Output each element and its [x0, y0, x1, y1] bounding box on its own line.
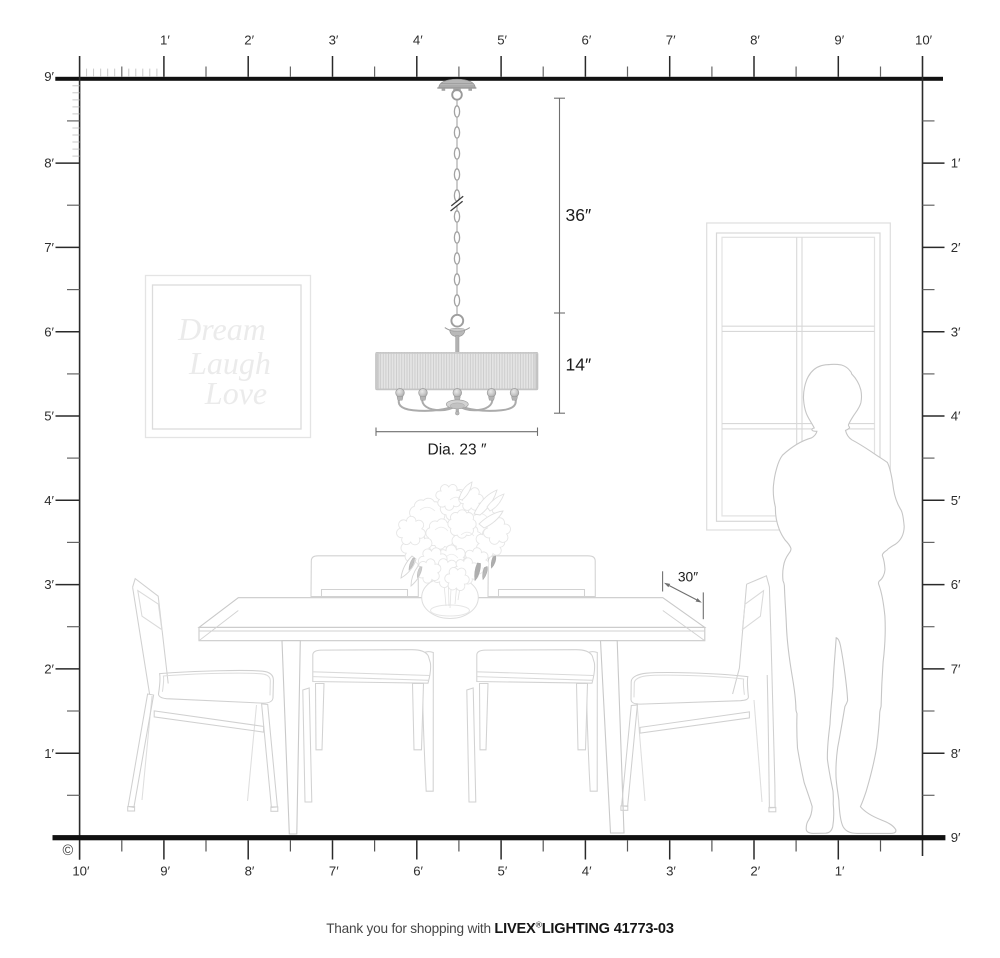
svg-text:8′: 8′	[750, 32, 760, 47]
svg-text:1′: 1′	[951, 156, 961, 171]
svg-text:6′: 6′	[951, 577, 961, 592]
svg-text:9′: 9′	[44, 69, 54, 84]
svg-text:©: ©	[63, 843, 74, 859]
svg-text:Dia. 23 ″: Dia. 23 ″	[428, 442, 487, 459]
svg-text:9′: 9′	[834, 32, 844, 47]
svg-text:Love: Love	[204, 375, 267, 411]
svg-text:7′: 7′	[329, 863, 339, 878]
svg-text:5′: 5′	[951, 493, 961, 508]
svg-text:7′: 7′	[666, 32, 676, 47]
svg-text:Thank you for shopping with LI: Thank you for shopping with LIVEX®LIGHTI…	[326, 920, 674, 938]
svg-text:5′: 5′	[497, 863, 507, 878]
svg-text:3′: 3′	[329, 32, 339, 47]
svg-text:2′: 2′	[44, 662, 54, 677]
svg-text:Dream: Dream	[177, 311, 266, 347]
svg-text:4′: 4′	[44, 493, 54, 508]
svg-text:4′: 4′	[413, 32, 423, 47]
svg-text:9′: 9′	[160, 863, 170, 878]
svg-text:1′: 1′	[160, 32, 170, 47]
svg-text:4′: 4′	[951, 409, 961, 424]
svg-text:30″: 30″	[678, 570, 698, 585]
svg-text:5′: 5′	[497, 32, 507, 47]
svg-text:10′: 10′	[72, 863, 90, 878]
svg-text:3′: 3′	[44, 577, 54, 592]
svg-text:36″: 36″	[566, 205, 592, 225]
svg-text:1′: 1′	[44, 746, 54, 761]
svg-text:7′: 7′	[951, 662, 961, 677]
svg-text:2′: 2′	[750, 863, 760, 878]
svg-text:6′: 6′	[44, 324, 54, 339]
svg-text:8′: 8′	[951, 746, 961, 761]
svg-text:6′: 6′	[581, 32, 591, 47]
svg-text:7′: 7′	[44, 240, 54, 255]
svg-text:4′: 4′	[582, 863, 592, 878]
svg-text:1′: 1′	[835, 863, 845, 878]
svg-text:2′: 2′	[244, 32, 254, 47]
svg-text:14″: 14″	[566, 355, 592, 375]
svg-text:8′: 8′	[245, 863, 255, 878]
svg-text:9′: 9′	[951, 830, 961, 845]
svg-text:3′: 3′	[951, 324, 961, 339]
svg-text:10′: 10′	[915, 32, 933, 47]
svg-text:6′: 6′	[413, 863, 423, 878]
svg-text:3′: 3′	[666, 863, 676, 878]
svg-text:5′: 5′	[44, 409, 54, 424]
svg-text:8′: 8′	[44, 156, 54, 171]
svg-text:2′: 2′	[951, 240, 961, 255]
